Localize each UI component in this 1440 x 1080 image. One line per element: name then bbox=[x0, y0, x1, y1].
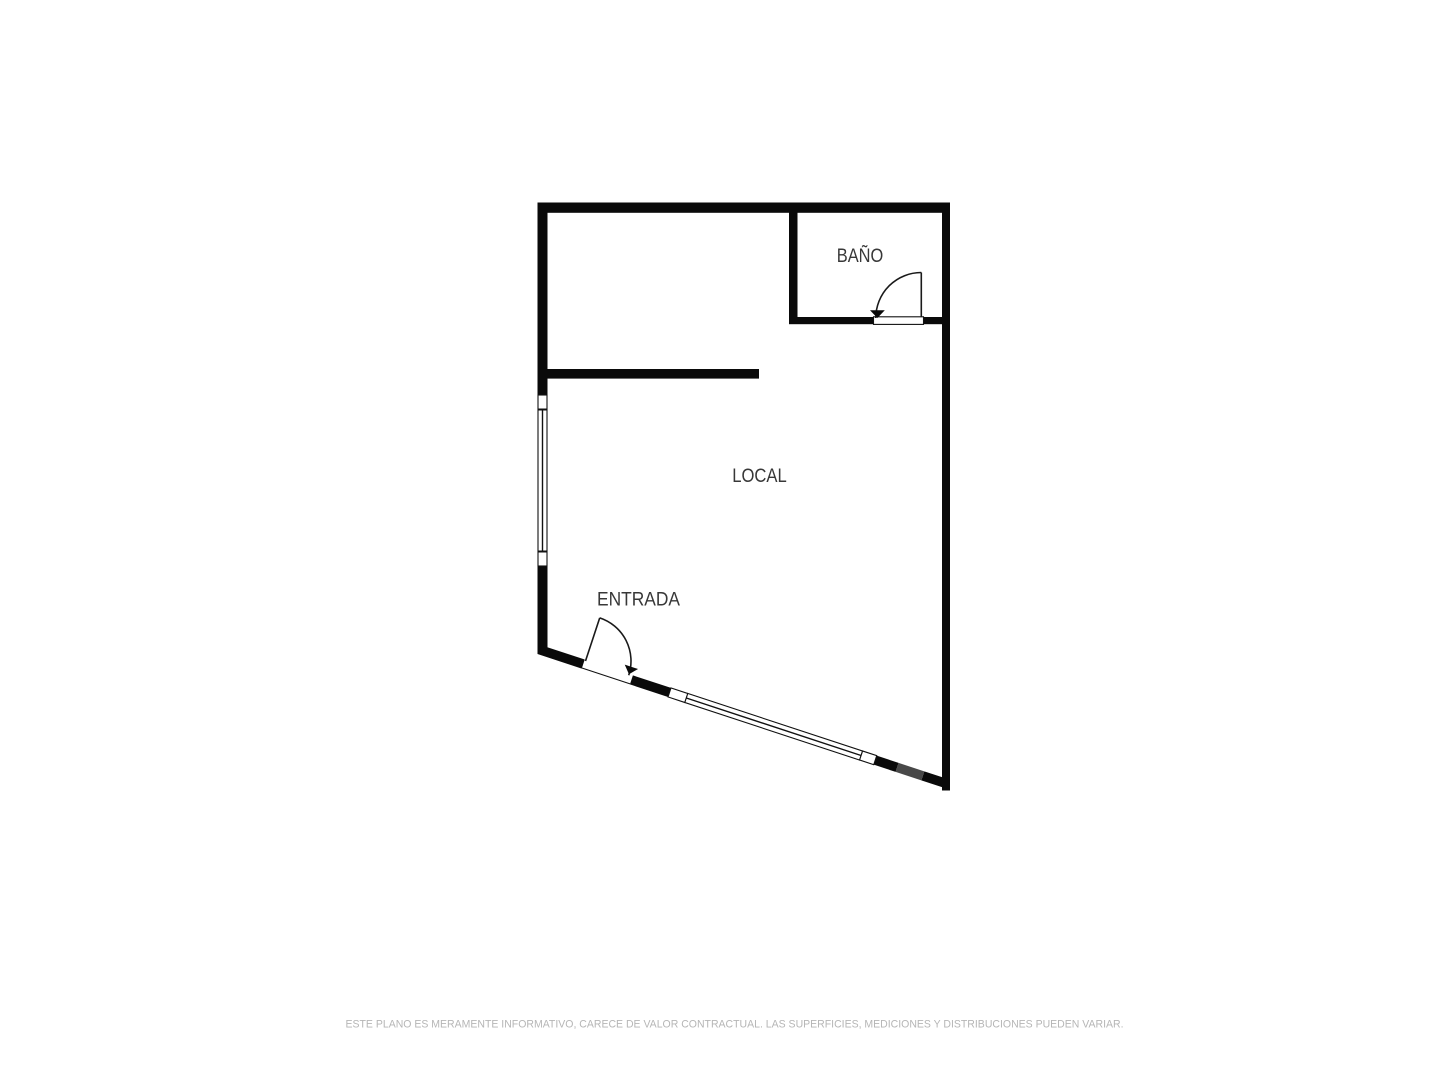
svg-text:LOCAL: LOCAL bbox=[732, 466, 787, 487]
svg-text:ENTRADA: ENTRADA bbox=[597, 590, 680, 611]
svg-text:BAÑO: BAÑO bbox=[837, 244, 884, 267]
svg-text:ESTE PLANO ES MERAMENTE INFORM: ESTE PLANO ES MERAMENTE INFORMATIVO, CAR… bbox=[346, 1018, 1124, 1030]
